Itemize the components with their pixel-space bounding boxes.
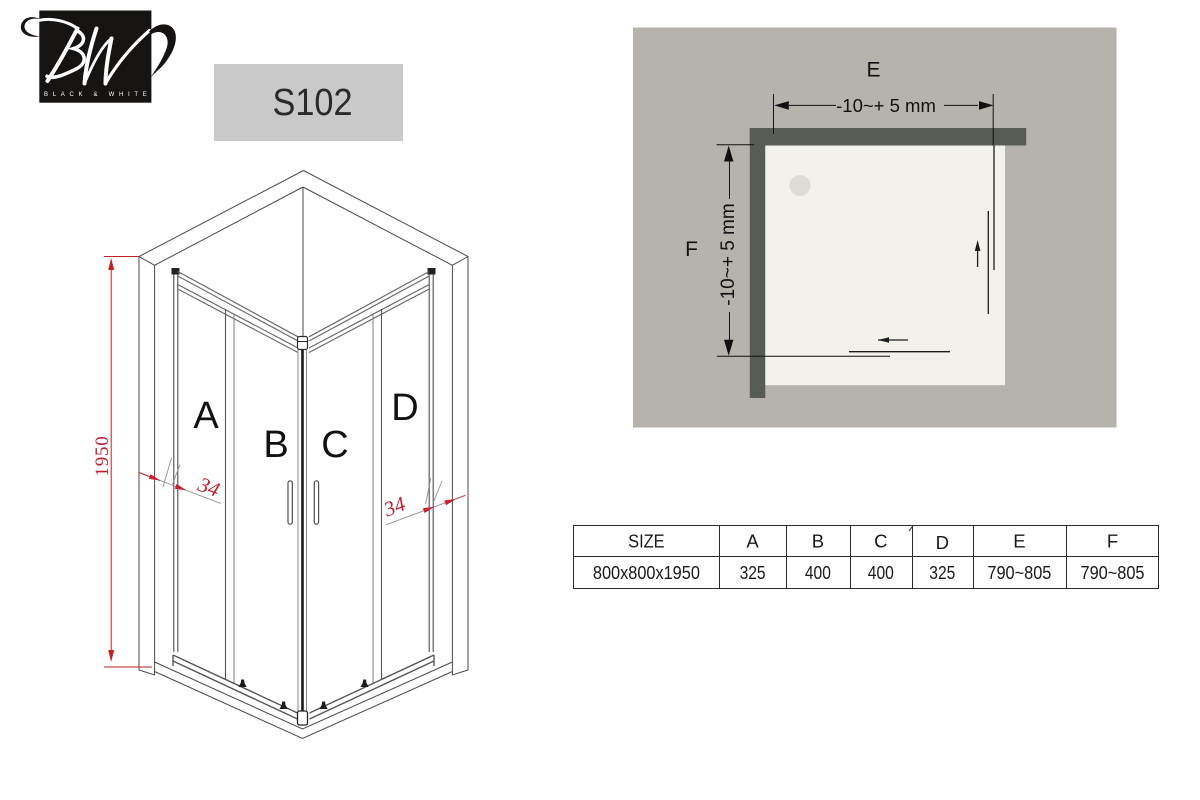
svg-text:B: B [263, 424, 288, 466]
svg-text:BLACK & WHITE: BLACK & WHITE [44, 92, 151, 98]
svg-text:C: C [874, 531, 887, 552]
svg-text:400: 400 [805, 562, 831, 583]
svg-text:C: C [321, 424, 348, 466]
svg-text:S102: S102 [273, 82, 353, 124]
svg-text:790~805: 790~805 [987, 562, 1051, 583]
svg-text:F: F [685, 238, 698, 261]
svg-text:790~805: 790~805 [1081, 562, 1145, 583]
svg-text:E: E [866, 59, 880, 82]
svg-text:-10~+ 5 mm: -10~+ 5 mm [836, 95, 936, 116]
svg-text:34: 34 [194, 472, 224, 502]
svg-text:SIZE: SIZE [628, 531, 665, 552]
svg-text:F: F [1107, 531, 1118, 552]
svg-text:800x800x1950: 800x800x1950 [593, 562, 700, 583]
svg-text:E: E [1013, 531, 1025, 552]
svg-text:34: 34 [380, 491, 410, 521]
svg-text:D: D [936, 532, 949, 553]
svg-text:325: 325 [740, 562, 766, 583]
svg-text:-10~+ 5 mm: -10~+ 5 mm [718, 203, 739, 305]
svg-text:1950: 1950 [92, 435, 113, 476]
svg-text:A: A [746, 531, 759, 552]
svg-text:400: 400 [868, 562, 894, 583]
svg-text:D: D [391, 387, 418, 429]
svg-text:B: B [812, 531, 824, 552]
svg-text:A: A [193, 395, 219, 437]
svg-text:325: 325 [929, 562, 955, 583]
